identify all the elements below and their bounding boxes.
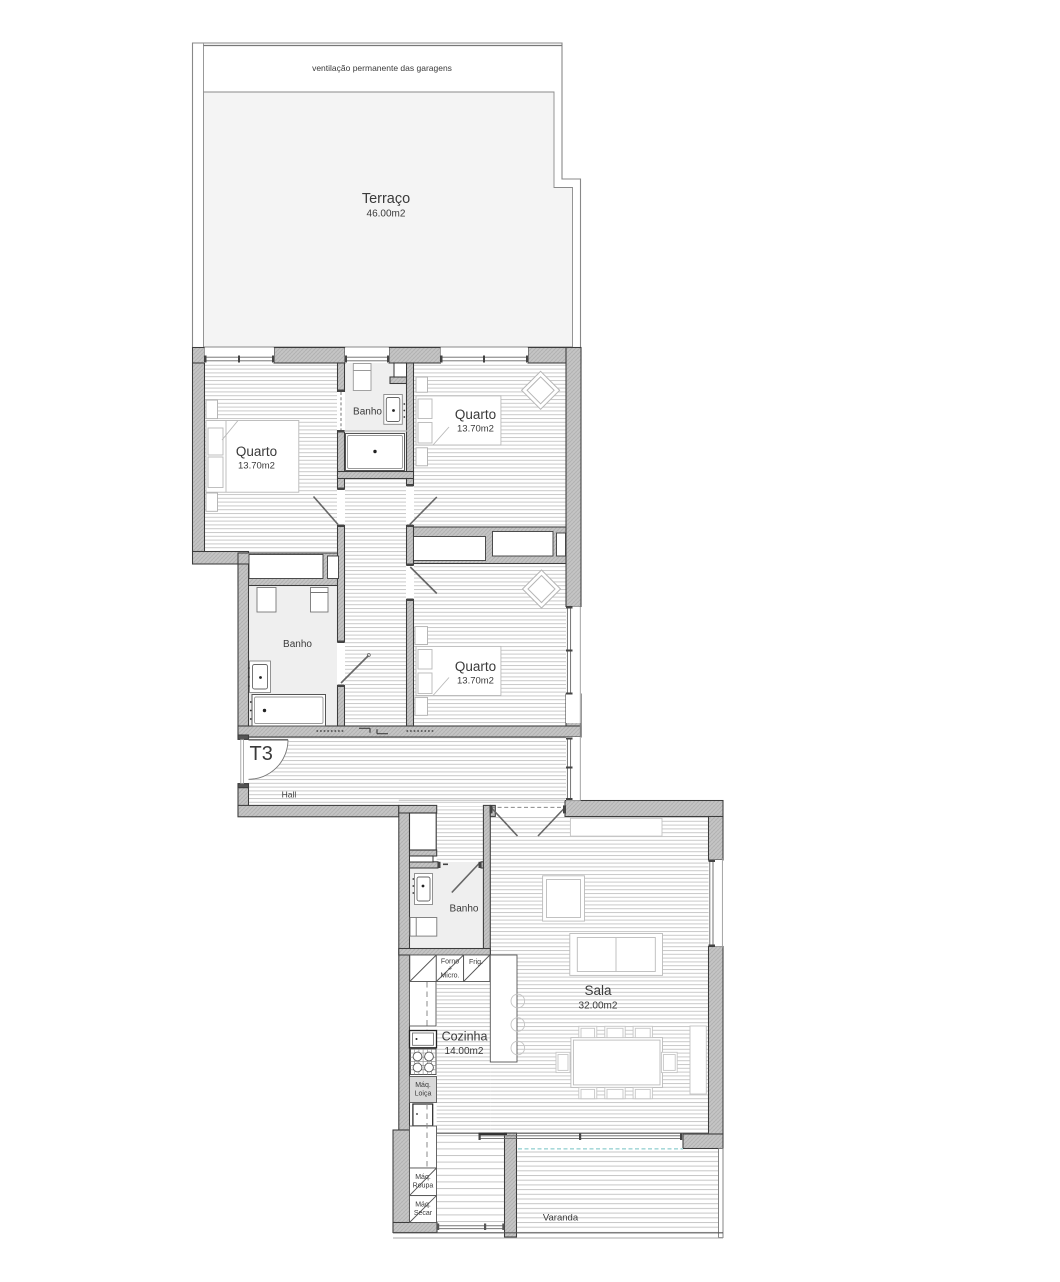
svg-text:Máq.: Máq.: [415, 1082, 431, 1089]
svg-text:Quarto: Quarto: [455, 407, 496, 422]
svg-text:Varanda: Varanda: [543, 1213, 579, 1224]
svg-text:Hall: Hall: [282, 790, 297, 800]
svg-text:Máq.: Máq.: [415, 1202, 431, 1209]
svg-text:Sala: Sala: [584, 983, 612, 998]
svg-text:Terraço: Terraço: [362, 191, 410, 207]
svg-text:Banho: Banho: [353, 407, 382, 418]
svg-text:Forno: Forno: [441, 959, 459, 966]
svg-text:46.00m2: 46.00m2: [367, 209, 406, 220]
svg-text:Roupa: Roupa: [413, 1183, 434, 1190]
svg-text:32.00m2: 32.00m2: [579, 1001, 618, 1012]
svg-text:Frig.: Frig.: [469, 959, 483, 966]
svg-text:Banho: Banho: [450, 904, 479, 915]
svg-text:13.70m2: 13.70m2: [238, 461, 275, 472]
svg-text:13.70m2: 13.70m2: [457, 424, 494, 435]
svg-text:Banho: Banho: [283, 639, 312, 650]
svg-text:Micro.: Micro.: [440, 973, 459, 980]
svg-text:ventilação permanente das gara: ventilação permanente das garagens: [312, 63, 452, 73]
svg-text:Quarto: Quarto: [455, 659, 496, 674]
svg-text:13.70m2: 13.70m2: [457, 676, 494, 687]
svg-text:+: +: [448, 966, 452, 973]
svg-text:Loiça: Loiça: [415, 1091, 432, 1098]
svg-text:Quarto: Quarto: [236, 444, 277, 459]
svg-text:T3: T3: [250, 743, 273, 765]
svg-text:14.00m2: 14.00m2: [445, 1046, 484, 1057]
svg-text:Secar: Secar: [414, 1210, 433, 1217]
svg-text:Cozinha: Cozinha: [442, 1030, 488, 1044]
svg-text:Máq.: Máq.: [415, 1174, 431, 1181]
